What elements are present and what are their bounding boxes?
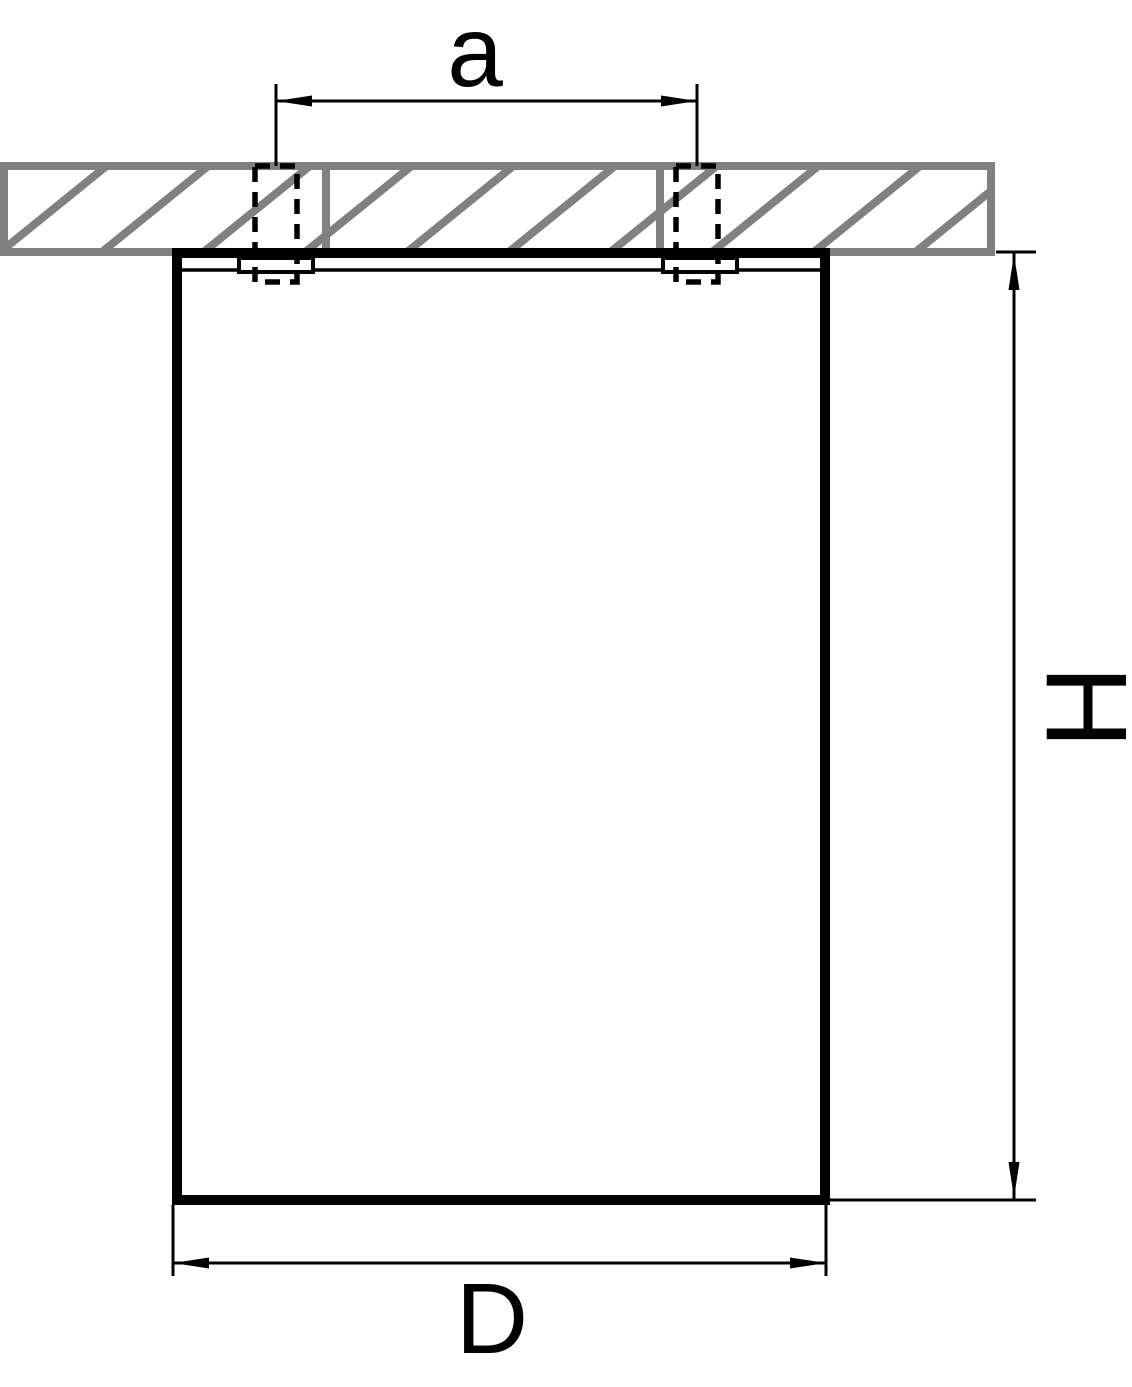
a-arrowhead-right [661,96,697,107]
technical-drawing: a H D [0,0,1132,1387]
mounting-tab-left [239,258,313,272]
H-dimension-label: H [1022,665,1132,748]
ceiling-hatch-fill [6,170,987,252]
ceiling-section [0,162,995,256]
a-arrowhead-left [276,96,312,107]
a-dimension-label: a [447,0,503,108]
dimension-D: D [173,1205,826,1375]
dimension-H: H [828,252,1132,1200]
dimension-a: a [276,0,697,166]
H-arrowhead-top [1009,254,1020,290]
body-outline [177,253,825,1200]
D-arrowhead-left [173,1258,209,1269]
luminaire-body [177,253,825,1200]
H-arrowhead-bottom [1009,1162,1020,1198]
D-arrowhead-right [790,1258,826,1269]
D-dimension-label: D [456,1263,528,1375]
drawing-canvas: a H D [0,0,1132,1387]
